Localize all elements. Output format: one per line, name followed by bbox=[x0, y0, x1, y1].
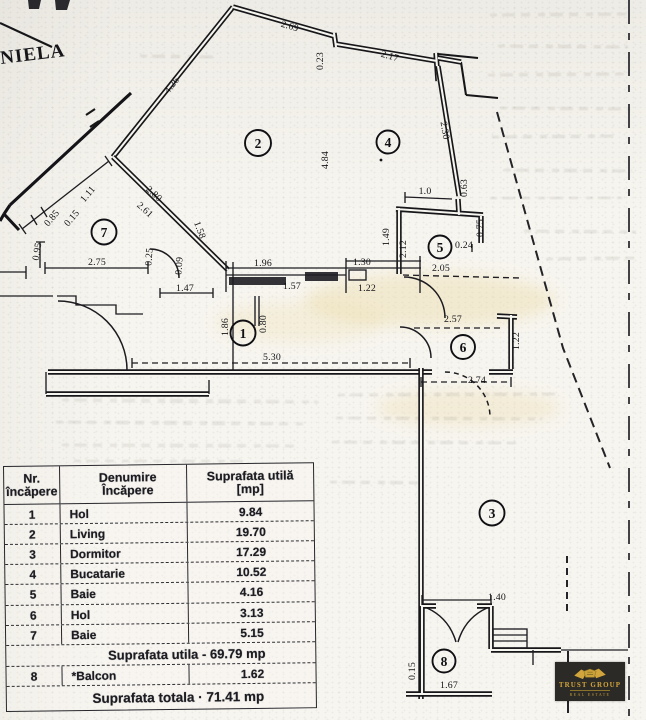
dim-label: 2.57 bbox=[444, 314, 462, 325]
room-areas-table: Nr. încăpere Denumire Încăpere Suprafata… bbox=[3, 462, 317, 712]
cell-name: Hol bbox=[62, 604, 189, 625]
dim-label: 1.11 bbox=[78, 184, 98, 205]
dim-label: 1.57 bbox=[283, 281, 301, 292]
cell-name: Baie bbox=[61, 583, 188, 605]
cell-area: 19.70 bbox=[188, 521, 314, 542]
room-number-bath-left: 7 bbox=[92, 220, 117, 245]
svg-text:4: 4 bbox=[385, 135, 392, 150]
dim-label: 5.30 bbox=[263, 352, 281, 363]
room-number-kitchen: 4 bbox=[377, 131, 400, 154]
header-area-line2: [mp] bbox=[237, 482, 264, 495]
dim-label: 0.15 bbox=[407, 662, 418, 680]
cell-nr: 3 bbox=[5, 544, 61, 564]
header-cell-area: Suprafata utilă [mp] bbox=[187, 463, 313, 502]
stamp-text: NIELA bbox=[0, 40, 66, 69]
dim-label: 0.95 bbox=[31, 242, 45, 262]
cell-area: 3.13 bbox=[189, 602, 315, 623]
dim-label: 1.22 bbox=[358, 283, 376, 294]
cell-area: 10.52 bbox=[188, 561, 314, 582]
cell-nr: 7 bbox=[6, 625, 62, 645]
svg-text:3: 3 bbox=[489, 506, 496, 521]
cell-nr: 8 bbox=[6, 666, 62, 686]
dim-label: 1.86 bbox=[220, 318, 231, 336]
logo-name: TRUST GROUP bbox=[559, 681, 621, 689]
dim-label: 1.47 bbox=[176, 283, 194, 294]
dim-label: 4.84 bbox=[320, 151, 331, 169]
room-number-living: 2 bbox=[245, 130, 271, 156]
cell-nr: 4 bbox=[5, 564, 61, 584]
dim-label: 2.61 bbox=[134, 200, 155, 220]
dim-label: 0.09 bbox=[173, 256, 185, 275]
svg-text:6: 6 bbox=[460, 340, 467, 355]
svg-text:2: 2 bbox=[255, 136, 262, 151]
stamp-cutoff-marks bbox=[28, 0, 70, 10]
dim-label: 2.74 bbox=[468, 375, 486, 386]
dim-label: 1.0 bbox=[419, 186, 432, 197]
cell-area: 5.15 bbox=[189, 622, 315, 643]
cell-nr: 2 bbox=[5, 524, 61, 544]
dim-label: 1.96 bbox=[254, 258, 272, 269]
dim-label: 1.30 bbox=[353, 257, 371, 268]
cell-name: Dormitor bbox=[61, 543, 188, 564]
dim-label: 2.69 bbox=[280, 19, 300, 35]
total-row: Suprafata totala · 71.41 mp bbox=[7, 683, 316, 711]
cell-name: Baie bbox=[62, 624, 189, 645]
cell-nr: 1 bbox=[4, 504, 60, 524]
dim-label: 0.15 bbox=[62, 208, 82, 229]
dim-label: 0.75 bbox=[475, 219, 486, 237]
room-number-balcony: 8 bbox=[433, 650, 456, 673]
dim-label: 1.49 bbox=[381, 228, 392, 246]
scanned-floor-plan-page: { "stamps": { "corner_text": "NIELA", "t… bbox=[0, 0, 646, 720]
cell-area: 9.84 bbox=[187, 501, 313, 522]
header-cell-name: Denumire Încăpere bbox=[60, 465, 187, 504]
exterior-walls bbox=[0, 54, 498, 230]
dim-label: 1.67 bbox=[440, 680, 458, 691]
dim-label: 0.63 bbox=[459, 179, 470, 197]
dim-label: 0.23 bbox=[315, 52, 326, 70]
svg-text:1: 1 bbox=[240, 326, 247, 341]
room-number-hall-small: 6 bbox=[451, 335, 475, 359]
dim-label: 2.75 bbox=[88, 257, 106, 268]
cell-nr: 5 bbox=[5, 584, 61, 605]
cell-name: Living bbox=[61, 523, 188, 544]
svg-text:7: 7 bbox=[101, 225, 108, 240]
cell-area: 1.62 bbox=[189, 663, 315, 684]
logo-tagline: REAL ESTATE bbox=[570, 690, 611, 697]
svg-text:8: 8 bbox=[441, 654, 448, 669]
cell-area: 17.29 bbox=[188, 541, 314, 562]
table-header-row: Nr. încăpere Denumire Încăpere Suprafata… bbox=[4, 463, 313, 505]
cell-area: 4.16 bbox=[188, 581, 314, 603]
header-cell-nr: Nr. încăpere bbox=[4, 466, 60, 504]
svg-text:5: 5 bbox=[437, 240, 444, 255]
dim-label: 1.40 bbox=[488, 592, 506, 603]
dim-label: 2.30 bbox=[437, 121, 451, 141]
room-number-bedroom: 3 bbox=[480, 501, 505, 526]
dim-label: 2.05 bbox=[432, 263, 450, 274]
header-name-line2: Încăpere bbox=[102, 484, 154, 497]
header-area-line1: Suprafata utilă bbox=[207, 469, 294, 483]
room-number-bath-small: 5 bbox=[429, 236, 452, 259]
dim-label: 0.24 bbox=[455, 240, 473, 251]
cell-name: Bucatarie bbox=[61, 563, 188, 584]
header-nr-line2: încăpere bbox=[6, 485, 58, 498]
dim-label: 0.25 bbox=[143, 247, 155, 266]
trust-group-logo: TRUST GROUP REAL ESTATE bbox=[555, 662, 625, 701]
dim-label: 2.12 bbox=[398, 240, 409, 258]
dim-label: 0.80 bbox=[258, 315, 269, 333]
header-nr-line1: Nr. bbox=[23, 473, 40, 486]
cell-nr: 6 bbox=[6, 605, 62, 625]
cell-name: Hol bbox=[60, 503, 187, 524]
dim-label: 2.17 bbox=[380, 49, 400, 65]
corner-stamp: NIELA bbox=[0, 0, 70, 69]
dim-label: 1.22 bbox=[511, 332, 522, 350]
handshake-icon bbox=[570, 666, 610, 680]
cell-name: *Balcon bbox=[62, 665, 189, 686]
